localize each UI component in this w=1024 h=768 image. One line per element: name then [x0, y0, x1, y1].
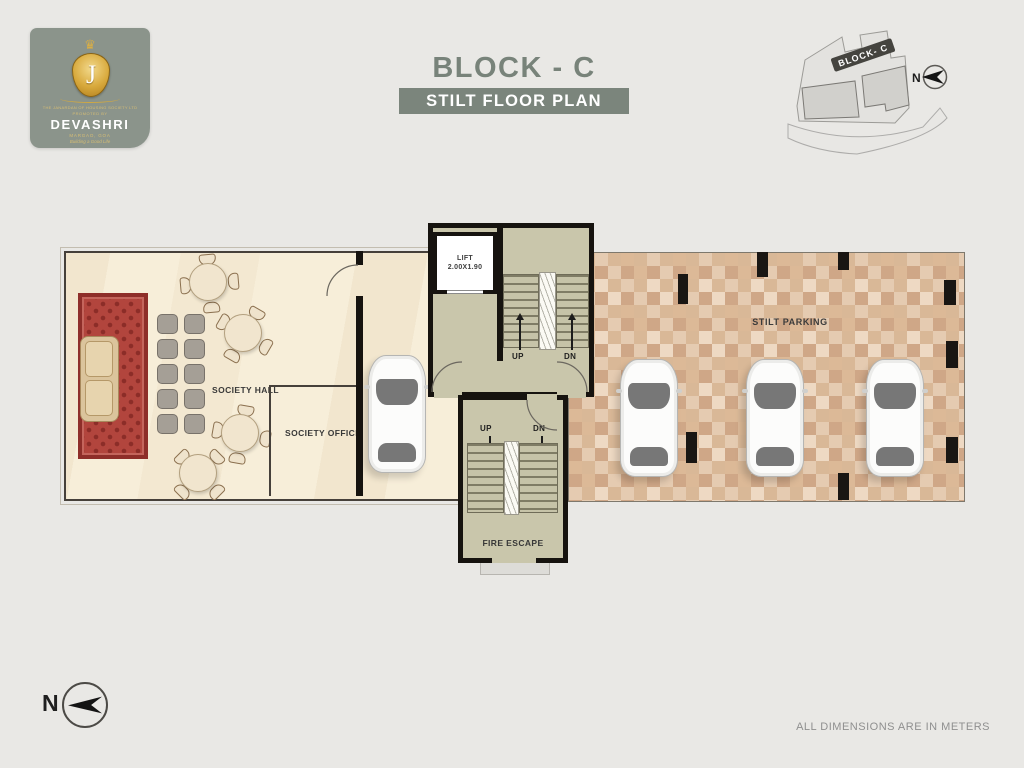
- lift-label: LIFT: [457, 254, 473, 263]
- page-title: BLOCK - C: [400, 52, 628, 85]
- car-rear-window: [378, 443, 416, 462]
- society-office-label: SOCIETY OFFICE: [285, 428, 361, 438]
- table-top: [189, 263, 227, 301]
- logo-monogram: J: [86, 60, 96, 89]
- car-mirror: [616, 389, 622, 393]
- sofa-cushion: [85, 380, 113, 416]
- chair: [184, 414, 205, 434]
- chair: [157, 339, 178, 359]
- keyplan-building-a: [802, 81, 859, 119]
- fire-stair-flight-up: [467, 443, 504, 513]
- keyplan-north-label: N: [912, 71, 921, 85]
- lift-shaft: LIFT 2.00X1.90: [433, 232, 497, 294]
- laurel-flourish: [60, 94, 120, 103]
- chair: [157, 389, 178, 409]
- hall-partition-wall: [356, 296, 363, 496]
- car-windshield: [754, 383, 796, 409]
- table-top: [179, 454, 217, 492]
- crown-icon: ♛: [30, 38, 150, 51]
- north-label: N: [42, 690, 59, 717]
- column: [838, 252, 849, 270]
- column: [757, 252, 768, 277]
- table-chair: [202, 301, 220, 313]
- fire-stair-flight-down: [519, 443, 558, 513]
- column: [686, 432, 697, 463]
- parked-car: [368, 355, 426, 473]
- up-arrow-icon: [519, 320, 521, 350]
- fire-stairs-up-label: UP: [480, 424, 492, 433]
- column: [678, 274, 688, 304]
- door-jamb: [356, 251, 363, 265]
- fire-stairs-dn-label: DN: [533, 424, 545, 433]
- brand-tagline: Building a Good Life: [30, 139, 150, 144]
- stair-flight-up: [503, 274, 539, 348]
- column: [946, 437, 958, 463]
- parked-car: [620, 359, 678, 477]
- car-mirror: [364, 385, 370, 389]
- fire-escape-label: FIRE ESCAPE: [458, 538, 568, 548]
- office-wall-horizontal: [269, 385, 361, 387]
- fire-stair-divider: [504, 441, 519, 515]
- key-plan: BLOCK- C N: [785, 28, 1000, 163]
- devashri-logo: ♛ J THE JANARDAN OF HOUSING SOCIETY LTD …: [30, 28, 150, 148]
- sofa: [80, 336, 119, 422]
- exterior-step: [480, 563, 550, 575]
- car-mirror: [742, 389, 748, 393]
- dimensions-note: ALL DIMENSIONS ARE IN METERS: [796, 721, 990, 733]
- parked-car: [866, 359, 924, 477]
- car-mirror: [862, 389, 868, 393]
- chair: [184, 314, 205, 334]
- chair: [184, 339, 205, 359]
- doorway-opening: [492, 556, 536, 563]
- chair: [184, 364, 205, 384]
- stair-divider: [539, 272, 556, 350]
- car-mirror: [922, 389, 928, 393]
- sofa-cushion: [85, 341, 113, 377]
- parked-car: [746, 359, 804, 477]
- column: [946, 341, 958, 368]
- brand-name: DEVASHRI: [30, 117, 150, 132]
- car-rear-window: [876, 447, 914, 466]
- doorway-opening: [527, 394, 557, 401]
- brand-location: MARGAO, GOA: [30, 133, 150, 138]
- round-table: [221, 414, 259, 452]
- chair: [157, 414, 178, 434]
- lift-door: [447, 290, 483, 294]
- page-subtitle: STILT FLOOR PLAN: [399, 88, 629, 114]
- round-table: [179, 454, 217, 492]
- chair: [184, 389, 205, 409]
- car-windshield: [874, 383, 916, 409]
- society-subline: PROMOTED BY: [30, 111, 150, 116]
- car-mirror: [802, 389, 808, 393]
- hall-chair-rows: [157, 314, 205, 434]
- car-windshield: [628, 383, 670, 409]
- north-arrow: N: [40, 676, 120, 740]
- round-table: [189, 263, 227, 301]
- round-table: [224, 314, 262, 352]
- main-stairs-dn-label: DN: [564, 352, 576, 361]
- main-stairs-up-label: UP: [512, 352, 524, 361]
- column: [944, 280, 956, 305]
- car-rear-window: [630, 447, 668, 466]
- up-arrow-icon: [571, 320, 573, 350]
- column: [838, 473, 849, 500]
- lift-size: 2.00X1.90: [448, 263, 483, 272]
- car-windshield: [376, 379, 418, 405]
- car-mirror: [676, 389, 682, 393]
- stilt-parking-label: STILT PARKING: [730, 317, 850, 327]
- car-rear-window: [756, 447, 794, 466]
- table-top: [224, 314, 262, 352]
- table-chair: [227, 272, 239, 290]
- logo-shield: J: [72, 53, 110, 97]
- office-wall-vertical: [269, 385, 271, 496]
- table-top: [221, 414, 259, 452]
- chair: [157, 314, 178, 334]
- society-name-line: THE JANARDAN OF HOUSING SOCIETY LTD: [30, 105, 150, 110]
- chair: [157, 364, 178, 384]
